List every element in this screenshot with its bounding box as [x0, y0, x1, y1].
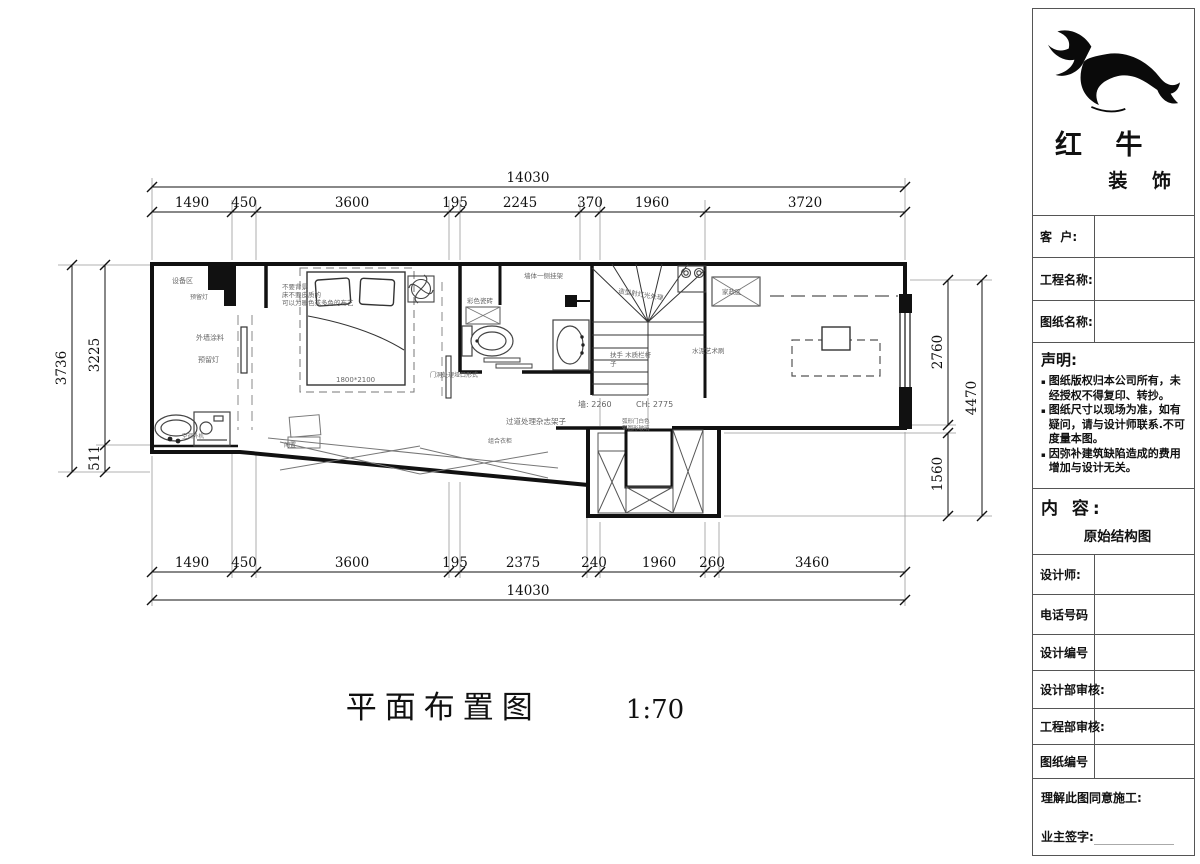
bullet-icon: ▪	[1041, 378, 1046, 403]
drawing-no-value-cell[interactable]	[1095, 745, 1194, 778]
housekeeping-label: 家政区	[722, 287, 742, 296]
project-name-label: 工程名称:	[1033, 258, 1095, 300]
content-title: 内 容:	[1041, 494, 1194, 519]
drawing-no-label: 图纸编号	[1033, 745, 1095, 778]
exterior-paint-label: 外墙涂料	[196, 333, 224, 342]
statement-cell: 声明: ▪图纸版权归本公司所有，未经授权不得复印、转抄。 ▪图纸尺寸以现场为准，…	[1033, 343, 1194, 489]
svg-text:2375: 2375	[506, 555, 540, 571]
agree-label: 理解此图同意施工:	[1041, 789, 1194, 806]
owner-sign-label: 业主签字:	[1041, 828, 1094, 845]
design-review-label: 设计部审核:	[1033, 671, 1095, 708]
wall-height-label: 墙: 2260	[578, 399, 612, 409]
statement-item: ▪因弥补建筑缺陷造成的费用增加与设计无关。	[1041, 447, 1190, 476]
bull-logo-icon	[1048, 25, 1180, 121]
design-no-row: 设计编号	[1033, 635, 1194, 671]
idle-label: 闲置	[284, 441, 296, 449]
eng-review-value-cell[interactable]	[1095, 709, 1194, 744]
design-review-row: 设计部审核:	[1033, 671, 1194, 709]
customer-value-cell[interactable]	[1095, 216, 1194, 257]
svg-text:3225: 3225	[87, 338, 103, 372]
eng-review-label: 工程部审核:	[1033, 709, 1095, 744]
design-no-value-cell[interactable]	[1095, 635, 1194, 670]
drawing-name-value-cell[interactable]	[1095, 301, 1194, 342]
svg-text:可以为暖色或多色的布艺: 可以为暖色或多色的布艺	[282, 298, 354, 307]
plan-scale: 1:70	[626, 695, 684, 725]
ac-unit-label: 空调外机	[182, 432, 205, 440]
dim-top-total: 14030	[507, 170, 550, 186]
drawing-name-label: 图纸名称:	[1033, 301, 1095, 342]
svg-text:1560: 1560	[930, 457, 946, 491]
svg-text:扶手 木质栏杆: 扶手 木质栏杆	[610, 350, 652, 359]
designer-label: 设计师:	[1033, 555, 1095, 594]
svg-text:床不要皮质的: 床不要皮质的	[282, 290, 322, 299]
svg-text:2760: 2760	[930, 335, 946, 369]
svg-text:不要背景: 不要背景	[282, 282, 309, 291]
svg-text:3600: 3600	[335, 195, 369, 211]
phone-row: 电话号码	[1033, 595, 1194, 635]
designer-row: 设计师:	[1033, 555, 1194, 595]
design-review-value-cell[interactable]	[1095, 671, 1194, 708]
bed-size-label: 1800*2100	[336, 376, 375, 384]
statement-item: ▪图纸版权归本公司所有，未经授权不得复印、转抄。	[1041, 374, 1190, 403]
svg-text:195: 195	[442, 555, 468, 571]
svg-text:带圆形玻璃: 带圆形玻璃	[622, 424, 650, 432]
signature-cell: 理解此图同意施工: 业主签字:	[1033, 779, 1194, 855]
svg-text:3600: 3600	[335, 555, 369, 571]
svg-text:1960: 1960	[642, 555, 676, 571]
svg-text:3720: 3720	[788, 195, 822, 211]
svg-text:511: 511	[87, 445, 103, 471]
floor-plan-drawing: 14030 1490 450 3600 195 2245 370 1960 37…	[0, 0, 1030, 664]
title-block: 红 牛 装 饰 客 户: 工程名称: 图纸名称: 声明: ▪图纸版权归本公司所有…	[1032, 8, 1195, 856]
door-note-label: 门洞处理垭口形式	[430, 371, 478, 379]
corridor-note-label: 过道处理杂志架子	[506, 416, 566, 426]
dim-bottom-total: 14030	[507, 583, 550, 599]
owner-signature-line[interactable]	[1094, 832, 1174, 845]
brand-suffix: 装 饰	[1108, 166, 1194, 193]
cement-art-label: 水泥艺术刷	[692, 346, 725, 355]
svg-text:1490: 1490	[175, 555, 209, 571]
svg-text:4470: 4470	[964, 381, 980, 415]
shower-point	[565, 295, 577, 307]
bath-sink	[553, 320, 589, 370]
drawing-sheet: 14030 1490 450 3600 195 2245 370 1960 37…	[0, 0, 1200, 864]
ceiling-height-label: CH: 2775	[636, 400, 673, 409]
statement-list: ▪图纸版权归本公司所有，未经授权不得复印、转抄。 ▪图纸尺寸以现场为准，如有疑问…	[1041, 374, 1190, 476]
svg-text:弧形门白色: 弧形门白色	[622, 417, 650, 425]
wall-rack-label: 墙体一侧挂架	[524, 271, 564, 280]
drawing-name-row: 图纸名称:	[1033, 301, 1194, 343]
bed	[307, 272, 405, 385]
drawing-no-row: 图纸编号	[1033, 745, 1194, 779]
logo-cell: 红 牛 装 饰	[1033, 9, 1194, 216]
svg-text:1490: 1490	[175, 195, 209, 211]
equipment-area-label: 设备区	[172, 276, 193, 285]
phone-label: 电话号码	[1033, 595, 1095, 634]
project-name-value-cell[interactable]	[1095, 258, 1194, 300]
svg-text:450: 450	[231, 555, 257, 571]
eng-review-row: 工程部审核:	[1033, 709, 1194, 745]
project-name-row: 工程名称:	[1033, 258, 1194, 301]
table	[822, 327, 850, 350]
right-window	[899, 294, 912, 429]
bullet-icon: ▪	[1041, 407, 1046, 447]
svg-text:3736: 3736	[54, 351, 70, 385]
reserved-light-label: 预留灯	[198, 355, 219, 364]
content-value: 原始结构图	[1041, 525, 1194, 545]
svg-text:3460: 3460	[795, 555, 829, 571]
svg-text:240: 240	[581, 555, 607, 571]
svg-text:2245: 2245	[503, 195, 537, 211]
wardrobe-label: 组合衣柜	[488, 437, 512, 445]
svg-text:1960: 1960	[635, 195, 669, 211]
tile-note-label: 彩色瓷砖	[467, 296, 494, 305]
statement-item: ▪图纸尺寸以现场为准，如有疑问，请与设计师联系.不可度量本图。	[1041, 403, 1190, 447]
brand-name: 红 牛	[1033, 123, 1154, 162]
svg-text:子: 子	[610, 360, 617, 368]
svg-text:450: 450	[231, 195, 257, 211]
phone-value-cell[interactable]	[1095, 595, 1194, 634]
bullet-icon: ▪	[1041, 451, 1046, 476]
toilet	[462, 326, 513, 356]
plan-title-row: 平面布置图 1:70	[0, 682, 1030, 727]
customer-label: 客 户:	[1033, 216, 1095, 257]
statement-title: 声明:	[1041, 349, 1190, 370]
content-cell: 内 容: 原始结构图	[1033, 489, 1194, 555]
svg-text:195: 195	[442, 195, 468, 211]
design-no-label: 设计编号	[1033, 635, 1095, 670]
customer-row: 客 户:	[1033, 216, 1194, 258]
svg-text:260: 260	[699, 555, 725, 571]
reserved-light-top-label: 预留灯	[190, 293, 208, 301]
designer-value-cell[interactable]	[1095, 555, 1194, 594]
svg-text:370: 370	[577, 195, 603, 211]
plan-title: 平面布置图	[346, 682, 541, 727]
